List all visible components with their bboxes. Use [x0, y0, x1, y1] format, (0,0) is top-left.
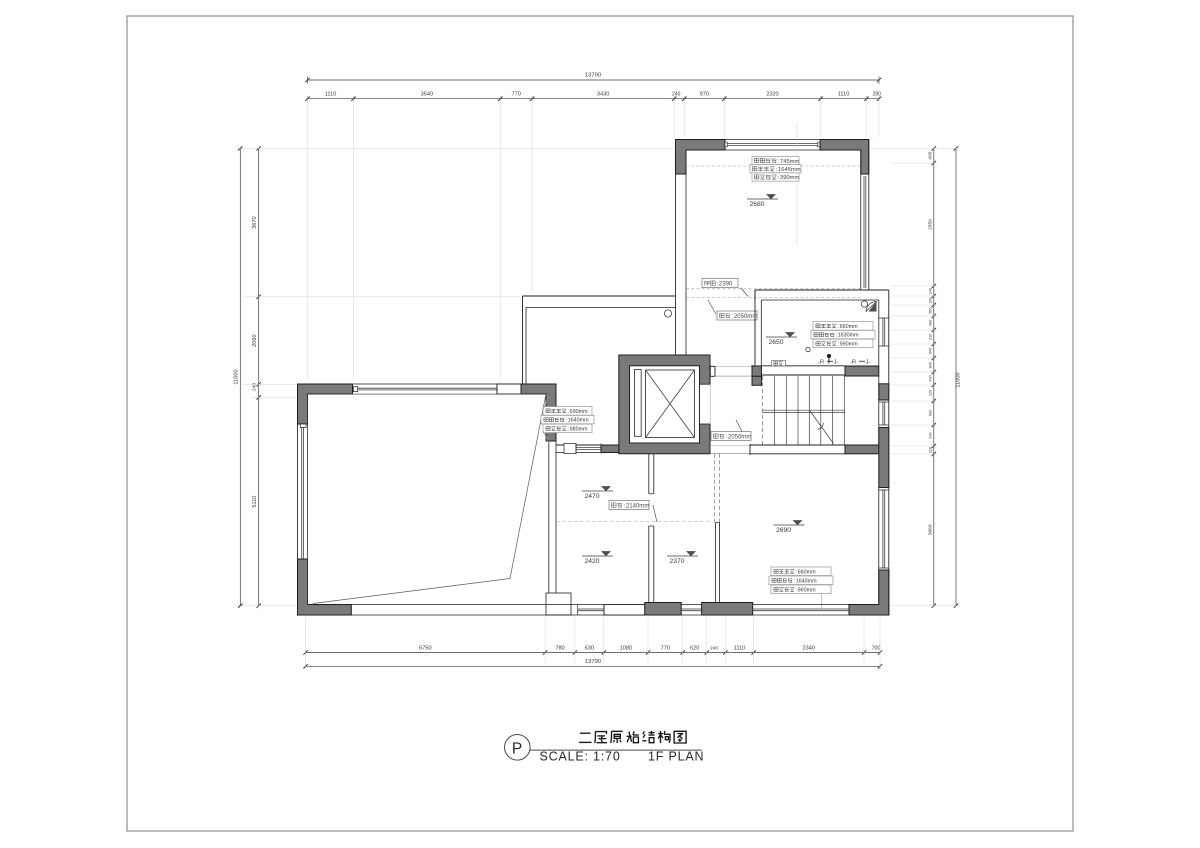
svg-text:2140mm: 2140mm	[626, 503, 649, 509]
svg-text:J-: J-	[834, 360, 839, 366]
svg-text:990mm: 990mm	[840, 342, 858, 348]
svg-text:2320: 2320	[766, 92, 778, 98]
svg-text:230: 230	[928, 334, 932, 340]
svg-text:180: 180	[928, 297, 932, 303]
svg-text:2340: 2340	[803, 646, 815, 652]
svg-text:220: 220	[928, 390, 932, 396]
svg-text:780: 780	[555, 646, 564, 652]
svg-text:960mm: 960mm	[798, 587, 816, 593]
svg-text:1640mm: 1640mm	[568, 418, 589, 424]
svg-text:1110: 1110	[838, 92, 850, 98]
svg-text:745mm: 745mm	[780, 159, 800, 165]
svg-text:240: 240	[710, 646, 718, 652]
svg-text:1645mm: 1645mm	[778, 167, 801, 173]
svg-text:690mm: 690mm	[570, 409, 588, 415]
svg-text:430: 430	[928, 432, 932, 438]
svg-text:770: 770	[661, 646, 670, 652]
svg-text:900: 900	[928, 410, 932, 416]
svg-text:3660: 3660	[927, 524, 933, 535]
svg-text:6750: 6750	[419, 646, 431, 652]
svg-text:2390: 2390	[719, 281, 733, 287]
svg-text:770: 770	[511, 92, 520, 98]
svg-text:970: 970	[700, 92, 709, 98]
svg-text:3430: 3430	[597, 92, 609, 98]
svg-text:980mm: 980mm	[570, 427, 588, 433]
svg-text:1F PLAN: 1F PLAN	[648, 749, 704, 763]
svg-text:2650: 2650	[768, 339, 783, 346]
svg-text:11000: 11000	[956, 372, 962, 387]
svg-text:2420: 2420	[584, 558, 599, 565]
svg-text:390mm: 390mm	[780, 175, 800, 181]
svg-text:-R: -R	[818, 360, 824, 366]
svg-text:5110: 5110	[252, 496, 258, 508]
svg-text:2050mm: 2050mm	[734, 314, 757, 320]
svg-text:J-: J-	[866, 360, 871, 366]
svg-text:840: 840	[928, 362, 932, 368]
svg-text:SCALE: 1:70: SCALE: 1:70	[540, 749, 621, 763]
svg-text:660mm: 660mm	[840, 324, 858, 330]
svg-text:2050mm: 2050mm	[728, 434, 751, 440]
svg-text:240: 240	[252, 383, 258, 391]
svg-text:2680: 2680	[749, 201, 764, 208]
svg-text:620: 620	[690, 646, 699, 652]
svg-text:1080: 1080	[620, 646, 632, 652]
svg-text:3540: 3540	[421, 92, 433, 98]
svg-text:2060: 2060	[252, 334, 258, 346]
svg-text:13790: 13790	[585, 659, 601, 665]
svg-text:700: 700	[872, 646, 881, 652]
svg-text:P: P	[512, 741, 522, 758]
svg-text:660mm: 660mm	[798, 569, 816, 575]
svg-text:2690: 2690	[776, 527, 791, 534]
svg-text:460: 460	[928, 320, 932, 326]
svg-text:280: 280	[873, 92, 882, 98]
svg-text:1110: 1110	[325, 92, 337, 98]
svg-text:1630mm: 1630mm	[838, 333, 859, 339]
svg-text:1110: 1110	[734, 646, 746, 652]
svg-text:-R: -R	[850, 360, 856, 366]
svg-text:630: 630	[585, 646, 594, 652]
svg-text:1640mm: 1640mm	[796, 578, 817, 584]
svg-text:2370: 2370	[669, 558, 684, 565]
svg-text:400: 400	[927, 151, 933, 159]
svg-text:430: 430	[928, 375, 932, 381]
svg-text:220: 220	[928, 447, 932, 453]
svg-text:940: 940	[928, 348, 932, 354]
svg-text:13790: 13790	[585, 73, 601, 79]
svg-text:2950: 2950	[927, 219, 933, 230]
svg-text:240: 240	[928, 288, 932, 294]
svg-text:11000: 11000	[234, 369, 240, 384]
svg-text:2470: 2470	[584, 493, 599, 500]
svg-text:240: 240	[672, 92, 681, 98]
svg-text:3670: 3670	[252, 216, 258, 228]
svg-text:650: 650	[928, 307, 932, 313]
